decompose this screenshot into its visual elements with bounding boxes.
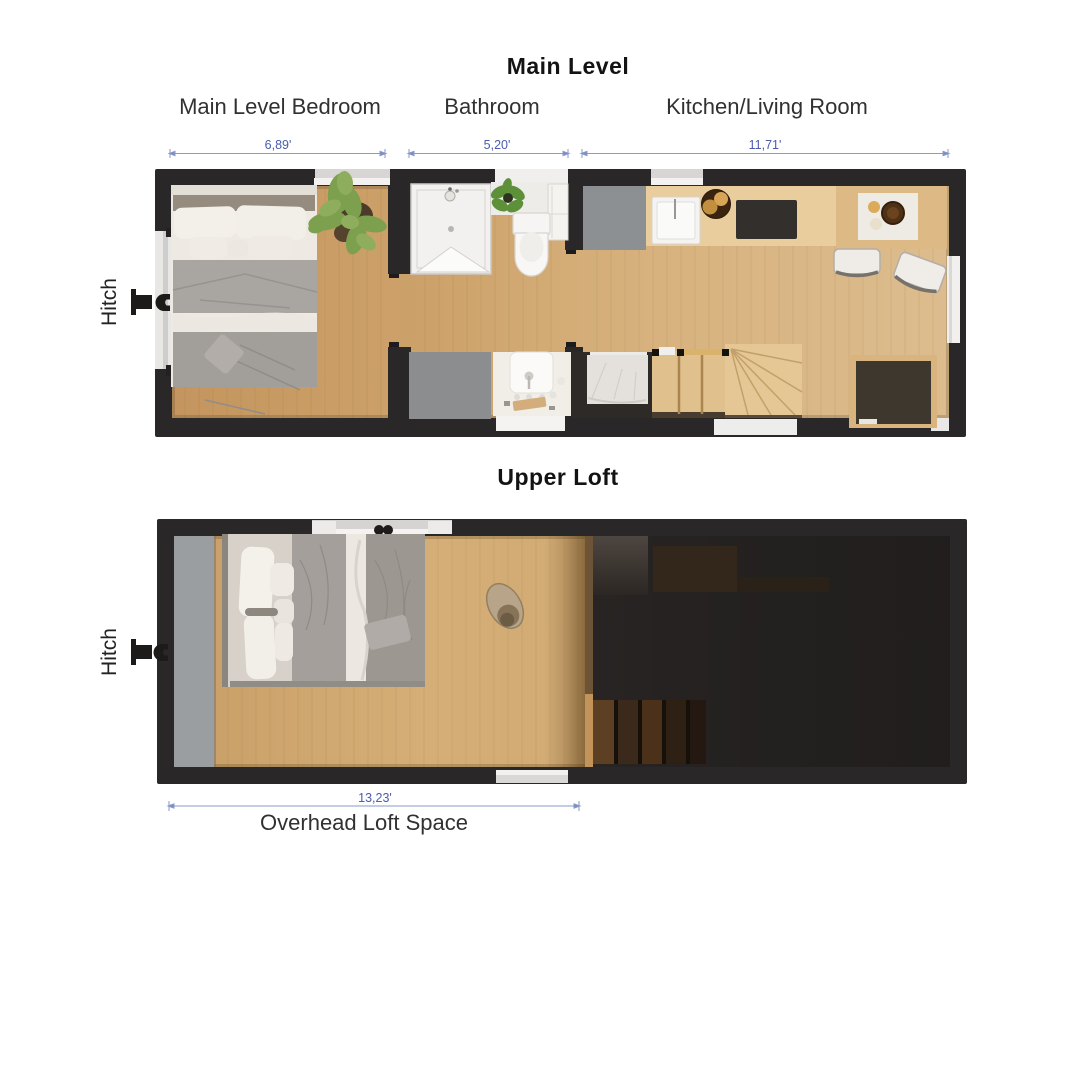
svg-text:13,23': 13,23' bbox=[358, 791, 392, 805]
svg-text:11,71': 11,71' bbox=[749, 138, 782, 152]
svg-text:Main Level: Main Level bbox=[507, 53, 630, 79]
svg-text:Overhead Loft Space: Overhead Loft Space bbox=[260, 810, 468, 835]
svg-text:Upper Loft: Upper Loft bbox=[497, 464, 618, 490]
svg-text:5,20': 5,20' bbox=[484, 138, 511, 152]
svg-text:Main Level Bedroom: Main Level Bedroom bbox=[179, 94, 381, 119]
svg-text:Kitchen/Living Room: Kitchen/Living Room bbox=[666, 94, 868, 119]
svg-text:Hitch: Hitch bbox=[98, 278, 121, 326]
svg-text:Bathroom: Bathroom bbox=[444, 94, 539, 119]
svg-text:6,89': 6,89' bbox=[265, 138, 292, 152]
svg-text:Hitch: Hitch bbox=[98, 628, 121, 676]
